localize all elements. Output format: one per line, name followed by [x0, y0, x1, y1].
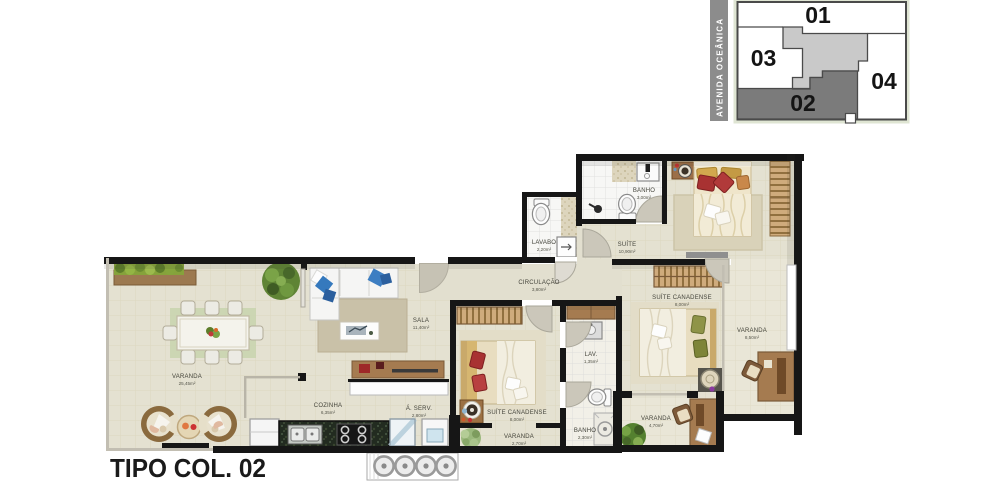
svg-text:LAV.: LAV.	[585, 352, 598, 358]
svg-text:VARANDA: VARANDA	[641, 416, 671, 422]
svg-text:LAVABO: LAVABO	[532, 240, 556, 246]
svg-text:COZINHA: COZINHA	[314, 403, 342, 409]
svg-text:VARANDA: VARANDA	[172, 374, 202, 380]
svg-text:3,80m²: 3,80m²	[532, 287, 547, 292]
svg-text:CIRCULAÇÃO: CIRCULAÇÃO	[518, 279, 559, 286]
svg-text:SUÍTE: SUÍTE	[618, 241, 637, 248]
svg-text:SALA: SALA	[413, 318, 429, 324]
svg-text:6,35m²: 6,35m²	[321, 410, 336, 415]
svg-text:TIPO COL. 02: TIPO COL. 02	[110, 455, 266, 483]
svg-text:2,80m²: 2,80m²	[412, 413, 427, 418]
svg-text:BANHO: BANHO	[574, 428, 596, 434]
svg-text:8,00m²: 8,00m²	[675, 302, 690, 307]
svg-text:2,70m²: 2,70m²	[512, 441, 527, 446]
svg-text:01: 01	[805, 2, 831, 28]
svg-text:10,90m²: 10,90m²	[619, 249, 636, 254]
svg-text:2,20m²: 2,20m²	[537, 247, 552, 252]
svg-text:03: 03	[751, 45, 777, 71]
svg-text:4,70m²: 4,70m²	[649, 423, 664, 428]
svg-text:8,00m²: 8,00m²	[510, 417, 525, 422]
svg-text:11,40m²: 11,40m²	[413, 325, 430, 330]
svg-text:8,50m²: 8,50m²	[745, 335, 760, 340]
svg-text:VARANDA: VARANDA	[504, 434, 534, 440]
svg-text:Á. SERV.: Á. SERV.	[406, 405, 432, 412]
svg-text:04: 04	[871, 68, 897, 94]
svg-text:02: 02	[790, 90, 816, 116]
svg-text:1,35m²: 1,35m²	[584, 359, 599, 364]
svg-text:AVENIDA OCEÂNICA: AVENIDA OCEÂNICA	[716, 18, 725, 117]
svg-text:25,45m²: 25,45m²	[179, 381, 196, 386]
svg-text:3,00m²: 3,00m²	[637, 195, 652, 200]
svg-text:SUÍTE CANADENSE: SUÍTE CANADENSE	[487, 409, 547, 416]
svg-text:SUÍTE CANADENSE: SUÍTE CANADENSE	[652, 294, 712, 301]
svg-text:VARANDA: VARANDA	[737, 328, 767, 334]
svg-text:BANHO: BANHO	[633, 188, 655, 194]
svg-text:2,30m²: 2,30m²	[578, 435, 593, 440]
